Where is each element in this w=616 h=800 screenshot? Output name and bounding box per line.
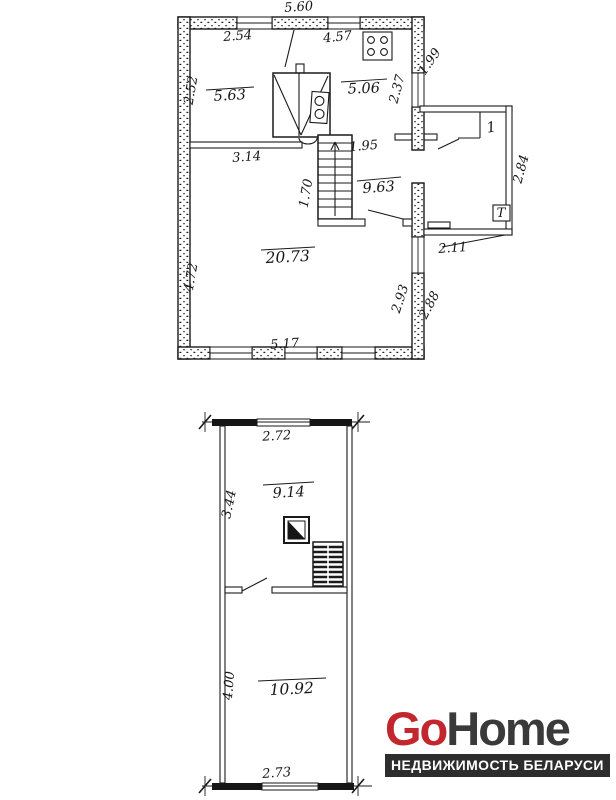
staircase-icon: [318, 135, 352, 219]
dim-top-window-right: 4.57: [321, 28, 353, 46]
room-area-lower-top: 9.14: [272, 484, 305, 502]
dim-stair-run: 1.70: [297, 178, 317, 209]
door-swing: [368, 210, 403, 219]
porch-fixture-letter: Т: [497, 206, 507, 221]
porch-room-number: 1: [485, 119, 497, 136]
furnace-icon: [273, 64, 330, 144]
dim-overall-width: 5.60: [284, 0, 314, 16]
lower-floor-plan: 2.72 3.44 9.14 4.00 10.92 2.73: [199, 412, 372, 796]
floor-plan-page: Т 5.60 2.54 4.57 2.52 5.63 5.06 2.37 1.9…: [0, 0, 616, 800]
interior-partition: [190, 142, 302, 148]
dim-right-wall-upper-inner: 2.37: [386, 72, 408, 106]
room-area-kitchen: 5.06: [347, 80, 380, 97]
logo-go: Go: [385, 702, 446, 755]
dim-lower-top-width: 2.72: [261, 428, 292, 445]
logo-wordmark: GoHome: [385, 704, 585, 753]
logo-home: Home: [446, 702, 569, 755]
lower-right-wall: [347, 426, 352, 783]
logo-tagline: НЕДВИЖИМОСТЬ БЕЛАРУСИ: [385, 754, 610, 777]
gohome-logo: GoHome НЕДВИЖИМОСТЬ БЕЛАРУСИ: [385, 704, 585, 777]
upper-floor-plan: Т 5.60 2.54 4.57 2.52 5.63 5.06 2.37 1.9…: [178, 0, 533, 359]
porch-step: [428, 222, 450, 228]
dim-right-wall-lower-inner: 2.93: [389, 283, 413, 316]
dim-lower-bottom-width: 2.73: [261, 765, 292, 782]
lower-left-wall: [220, 426, 225, 783]
dim-top-window-left: 2.54: [222, 28, 253, 45]
staircase-icon-lower: [313, 542, 343, 586]
door-swing: [242, 578, 267, 591]
door-swing: [285, 30, 294, 67]
dim-stair-opening: 1.95: [349, 138, 379, 155]
room-area-hall: 9.63: [362, 179, 395, 197]
dim-porch-depth: 2.84: [510, 153, 532, 186]
dim-partition-width: 3.14: [232, 149, 262, 166]
stove-icon: [363, 32, 392, 60]
room-area-lower-bottom: 10.92: [269, 679, 314, 699]
porch: Т: [420, 106, 512, 247]
chimney-icon: [284, 517, 309, 543]
door-swing: [438, 139, 459, 149]
room-area-topleft: 5.63: [213, 87, 246, 105]
dim-lower-room-height: 4.00: [221, 671, 239, 702]
room-area-living: 20.73: [264, 247, 310, 267]
dim-bottom-wall: 5.17: [270, 336, 301, 353]
dim-porch-width: 2.11: [437, 240, 468, 257]
floor-plan-drawing: Т 5.60 2.54 4.57 2.52 5.63 5.06 2.37 1.9…: [0, 0, 616, 800]
